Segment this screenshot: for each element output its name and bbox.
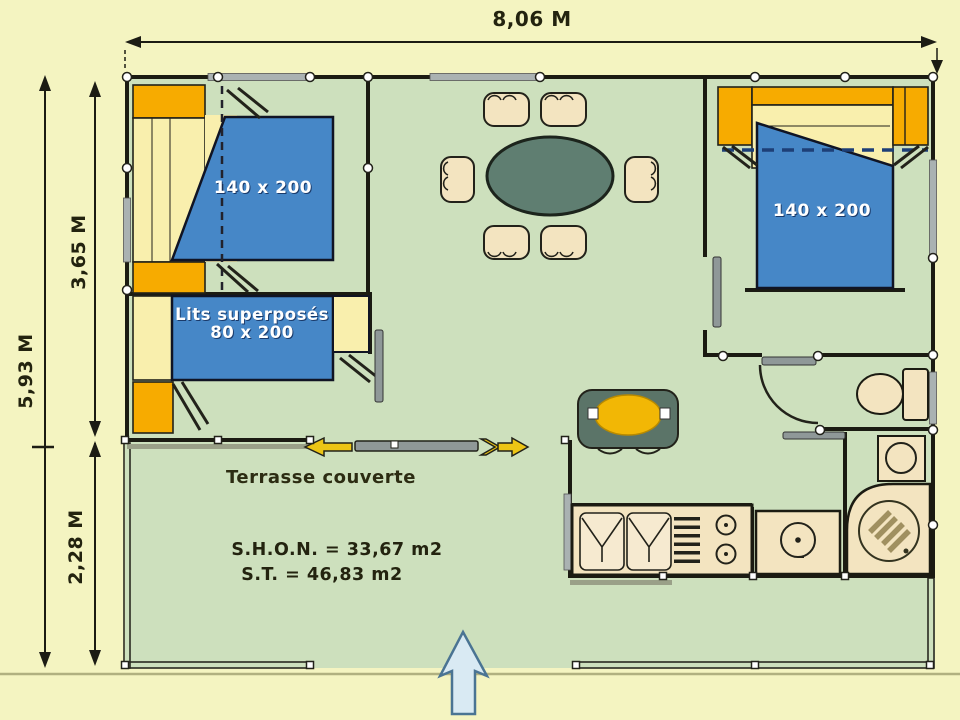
bunk-room-door-leaf [375,330,383,402]
bunk-bed-label-line2: 80 x 200 [152,324,352,342]
bedroom-right-door-leaf [713,257,721,327]
bunk-bed-label: Lits superposés 80 x 200 [152,306,352,342]
kitchen [572,505,840,575]
shower [847,484,930,574]
sliding-panel-post [391,441,398,448]
bed-left-size-label: 140 x 200 [173,179,353,198]
bathroom-door-leaf [783,432,845,439]
small-table [578,390,678,454]
dimension-label-terrace-depth: 2,28 M [65,502,87,592]
sliding-panel [355,441,478,451]
dimension-label-building-depth: 3,65 M [68,207,90,297]
bed-right-size-label: 140 x 200 [732,202,912,221]
wc-door-leaf [762,357,816,365]
st-area-label: S.T. = 46,83 m2 [172,566,472,585]
appliance [756,511,840,574]
dimension-label-total-depth: 5,93 M [15,326,37,416]
floor-plan-canvas [0,0,960,720]
floor-plan: 8,06 M 5,93 M 3,65 M 2,28 M 140 x 200 Li… [0,0,960,720]
terrace-label: Terrasse couverte [201,468,441,488]
dining-table [487,137,613,215]
bunk-bed-label-line1: Lits superposés [152,306,352,324]
washbasin [878,436,925,481]
dimension-label-width: 8,06 M [417,8,647,30]
shon-area-label: S.H.O.N. = 33,67 m2 [187,541,487,560]
